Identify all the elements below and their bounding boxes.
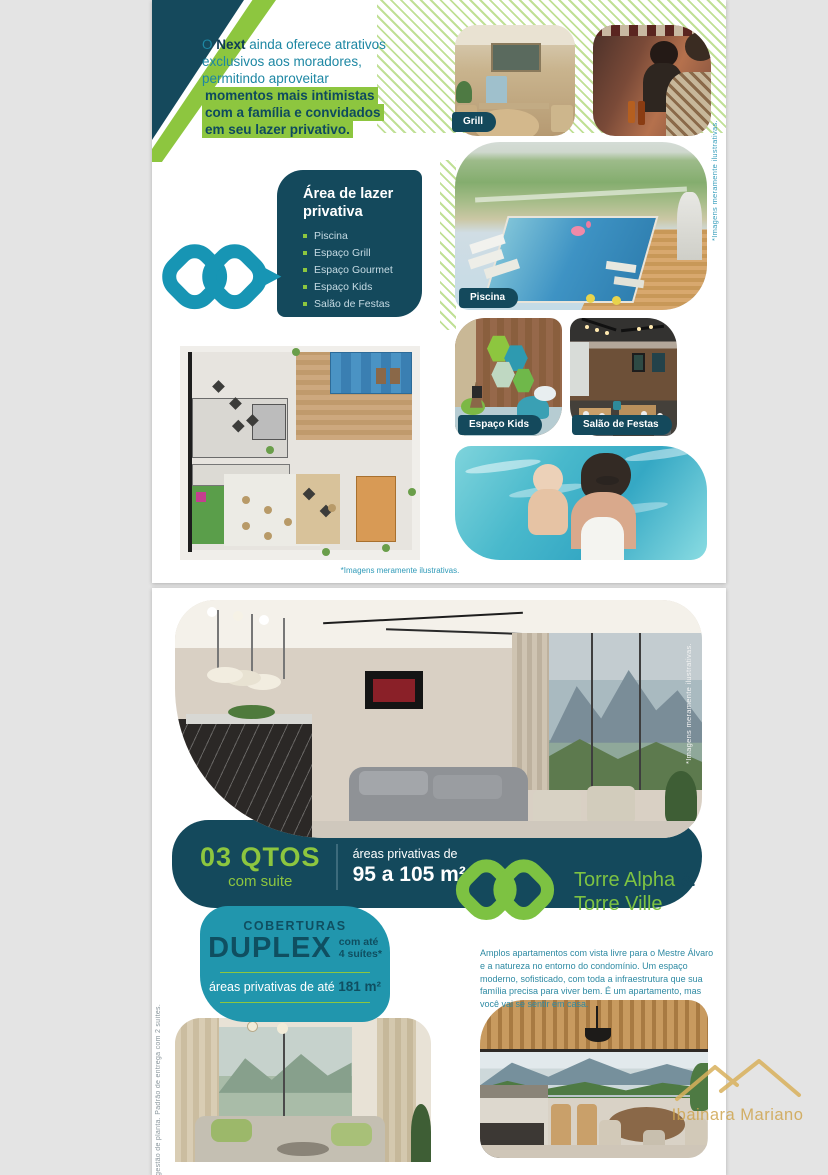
realtor-name: Ibainara Mariano [645,1106,828,1125]
brand-logo-icon [148,230,284,324]
hatch-pattern-strip [440,160,456,330]
pool-label-badge: Piscina [459,288,518,308]
bullet-icon [303,251,307,255]
leisure-title: Área de lazer privativa [303,185,413,221]
bullet-icon [303,285,307,289]
grill-label-badge: Grill [452,112,496,132]
leisure-item: Espaço Gourmet [303,264,412,276]
brochure-page-2: *Imagens meramente ilustrativas. 03 QTOS… [152,588,726,1175]
leisure-list: Piscina Espaço Grill Espaço Gourmet Espa… [303,230,412,310]
leisure-area-box: Área de lazer privativa Piscina Espaço G… [277,170,422,317]
document-viewer[interactable]: O Next ainda oferece atrativos exclusivo… [0,0,828,1175]
bullet-icon [303,302,307,306]
duplex-coverages-box: COBERTURAS DUPLEX com até4 suítes* áreas… [200,906,390,1022]
plan-suggestion-note: *Sugestão de planta. Padrão de entrega c… [155,950,162,1175]
divider [220,1002,370,1003]
mother-baby-pool-photo [455,446,707,560]
bedrooms-count: 03 QTOS com suite [200,844,321,890]
disclaimer-vertical-note: *Imagens meramente ilustrativas. [710,96,719,241]
leisure-item: Salão de Festas [303,298,412,310]
realtor-watermark: Ibainara Mariano [645,1055,828,1125]
description-paragraph: Amplos apartamentos com vista livre para… [480,947,716,1011]
leisure-item: Espaço Kids [303,281,412,293]
intro-text: O [202,37,216,52]
intro-paragraph: O Next ainda oferece atrativos exclusivo… [202,36,398,138]
divider [220,972,370,973]
apartment-interior-photo [175,1018,431,1162]
brand-name: Next [216,37,245,52]
pool-aerial-photo [455,142,707,310]
floorplan-image [180,346,420,560]
tower-names: Torre Alpha &Torre Ville [574,868,695,916]
brand-logo-green-icon [442,846,568,934]
brochure-page-1: O Next ainda oferece atrativos exclusivo… [152,0,726,583]
duplex-area: áreas privativas de até 181 m² [200,979,390,994]
friends-photo [593,25,711,136]
bullet-icon [303,268,307,272]
roof-logo-icon [663,1055,813,1107]
highlighted-text: momentos mais intimistas com a família e… [202,87,384,138]
bullet-icon [303,234,307,238]
disclaimer-vertical-note: *Imagens meramente ilustrativas. [684,614,693,764]
living-room-photo [175,600,702,838]
leisure-item: Piscina [303,230,412,242]
party-label-badge: Salão de Festas [572,415,672,435]
divider [336,844,338,890]
kids-label-badge: Espaço Kids [458,415,542,435]
duplex-suites-note: com até4 suítes* [339,937,382,960]
leisure-item: Espaço Grill [303,247,412,259]
disclaimer-caption: *Imagens meramente ilustrativas. [280,566,520,575]
